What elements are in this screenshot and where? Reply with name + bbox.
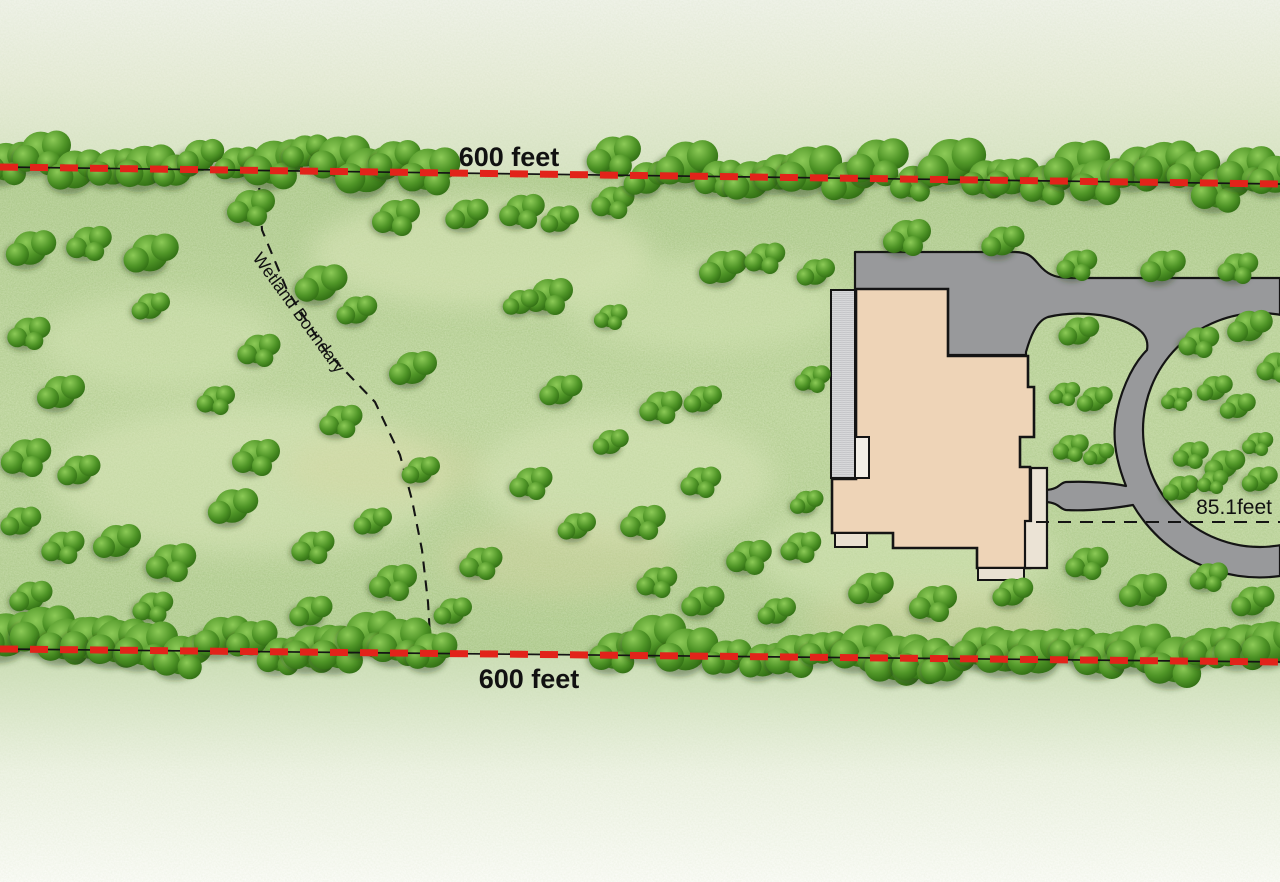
house-step-bottom: [978, 568, 1024, 580]
bottom-boundary-label: 600 feet: [479, 664, 580, 694]
house-deck: [831, 290, 855, 478]
house-inset: [855, 437, 869, 478]
setback-label: 85.1feet: [1196, 496, 1272, 519]
top-boundary-label: 600 feet: [459, 142, 560, 172]
house-step-left: [835, 533, 867, 547]
site-plan-canvas: 600 feet 600 feet Wetland Boundary 85.1f…: [0, 0, 1280, 882]
site-plan-page: 600 feet 600 feet Wetland Boundary 85.1f…: [0, 0, 1280, 882]
